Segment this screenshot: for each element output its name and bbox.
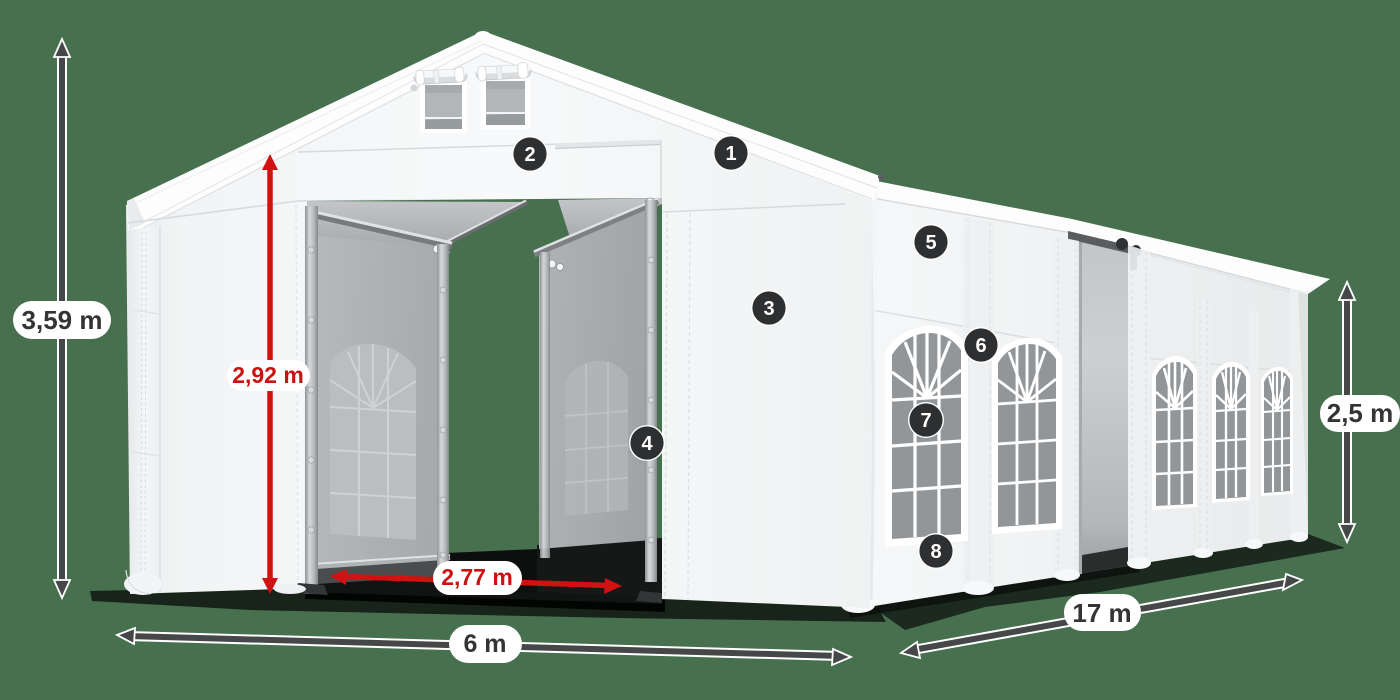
svg-text:2: 2 bbox=[524, 144, 535, 166]
svg-text:3: 3 bbox=[763, 298, 774, 320]
svg-text:17 m: 17 m bbox=[1072, 598, 1131, 628]
svg-text:5: 5 bbox=[925, 232, 936, 254]
svg-text:2,77 m: 2,77 m bbox=[441, 564, 513, 590]
svg-text:6 m: 6 m bbox=[463, 630, 506, 658]
svg-text:1: 1 bbox=[725, 143, 736, 165]
svg-text:7: 7 bbox=[920, 410, 931, 432]
svg-text:2,5 m: 2,5 m bbox=[1327, 398, 1394, 428]
svg-text:6: 6 bbox=[975, 335, 986, 357]
svg-text:3,59 m: 3,59 m bbox=[22, 305, 103, 335]
svg-text:4: 4 bbox=[641, 433, 653, 455]
svg-text:2,92 m: 2,92 m bbox=[232, 362, 304, 388]
svg-text:8: 8 bbox=[930, 541, 941, 563]
